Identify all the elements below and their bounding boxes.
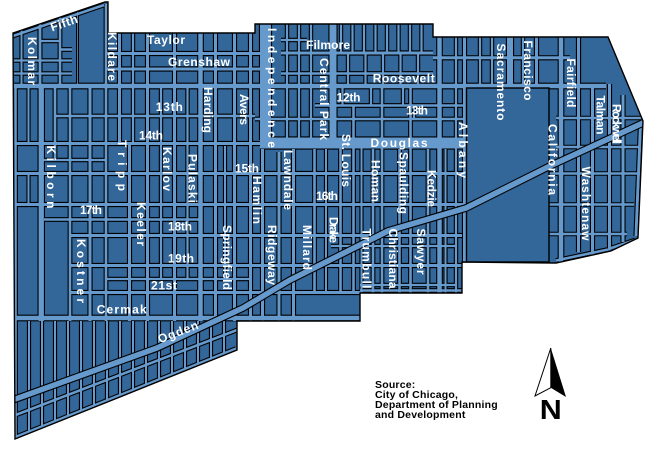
svg-text:Independence: Independence bbox=[265, 28, 279, 148]
svg-text:Harding: Harding bbox=[201, 87, 215, 133]
svg-text:Grenshaw: Grenshaw bbox=[168, 55, 231, 69]
svg-text:Sacramento: Sacramento bbox=[494, 44, 508, 121]
svg-text:18th: 18th bbox=[168, 220, 192, 234]
svg-text:Keeler: Keeler bbox=[134, 202, 148, 246]
svg-text:Talman: Talman bbox=[593, 96, 607, 135]
svg-text:Cermak: Cermak bbox=[97, 303, 147, 317]
svg-text:Ridgeway: Ridgeway bbox=[265, 225, 279, 285]
svg-text:Millard: Millard bbox=[300, 225, 314, 270]
svg-text:Spaulding: Spaulding bbox=[396, 152, 410, 214]
svg-text:Taylor: Taylor bbox=[147, 33, 185, 47]
svg-text:Pulaski: Pulaski bbox=[185, 154, 199, 203]
svg-text:Sawyer: Sawyer bbox=[414, 229, 428, 275]
svg-text:Trumbull: Trumbull bbox=[359, 229, 373, 289]
svg-text:Roosevelt: Roosevelt bbox=[373, 72, 435, 86]
svg-text:21st: 21st bbox=[151, 279, 177, 293]
svg-text:Christiana: Christiana bbox=[386, 229, 400, 289]
svg-text:15th: 15th bbox=[235, 162, 259, 176]
svg-text:Homan: Homan bbox=[368, 160, 382, 202]
svg-text:Avers: Avers bbox=[237, 94, 251, 125]
svg-text:California: California bbox=[545, 124, 559, 195]
svg-text:16th: 16th bbox=[316, 189, 338, 203]
svg-text:Kildare: Kildare bbox=[105, 32, 119, 81]
svg-text:13th: 13th bbox=[156, 100, 183, 114]
svg-text:Rockwell: Rockwell bbox=[609, 104, 623, 144]
svg-text:Drake: Drake bbox=[326, 217, 340, 243]
svg-text:Douglas: Douglas bbox=[371, 136, 428, 150]
svg-text:14th: 14th bbox=[139, 129, 163, 143]
svg-text:Washtenaw: Washtenaw bbox=[579, 167, 593, 242]
svg-text:13th: 13th bbox=[406, 104, 428, 118]
svg-text:Springfield: Springfield bbox=[220, 225, 234, 290]
svg-text:Hamlin: Hamlin bbox=[250, 176, 264, 224]
svg-text:Filmore: Filmore bbox=[306, 38, 350, 52]
svg-text:N: N bbox=[540, 394, 562, 425]
svg-text:17th: 17th bbox=[80, 203, 102, 217]
svg-text:Lawndale: Lawndale bbox=[281, 150, 295, 210]
svg-text:Central Park: Central Park bbox=[317, 58, 331, 140]
svg-text:Karlov: Karlov bbox=[160, 147, 174, 191]
svg-text:Kolmar: Kolmar bbox=[25, 37, 39, 85]
svg-text:19th: 19th bbox=[168, 252, 194, 266]
svg-text:Fairfield: Fairfield bbox=[564, 59, 578, 108]
svg-text:12th: 12th bbox=[337, 91, 361, 105]
svg-text:Francisco: Francisco bbox=[521, 41, 535, 101]
svg-text:and Development: and Development bbox=[375, 409, 466, 421]
svg-text:Kedzie: Kedzie bbox=[424, 170, 438, 207]
svg-text:St. Louis: St. Louis bbox=[339, 134, 353, 187]
